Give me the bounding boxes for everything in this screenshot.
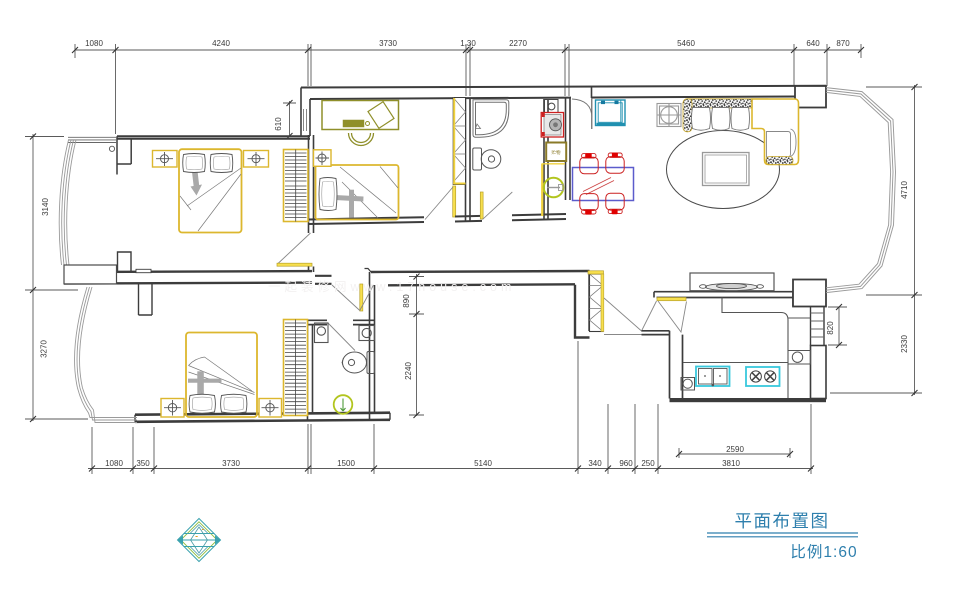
- svg-text:3140: 3140: [41, 198, 50, 216]
- svg-text:870: 870: [836, 39, 850, 48]
- svg-text:2240: 2240: [404, 362, 413, 380]
- svg-text:一起装修网www.17house.com: 一起装修网www.17house.com: [268, 279, 515, 294]
- svg-text:2330: 2330: [900, 335, 909, 353]
- svg-text:4240: 4240: [212, 39, 230, 48]
- svg-text:1500: 1500: [337, 459, 355, 468]
- svg-text:平面布置图: 平面布置图: [735, 511, 830, 531]
- svg-text:1080: 1080: [85, 39, 103, 48]
- svg-text:960: 960: [619, 459, 633, 468]
- svg-text:820: 820: [826, 321, 835, 335]
- svg-text:3810: 3810: [722, 459, 740, 468]
- svg-text:610: 610: [274, 117, 283, 131]
- svg-text:5460: 5460: [677, 39, 695, 48]
- svg-text:250: 250: [641, 459, 655, 468]
- svg-text:3270: 3270: [40, 340, 49, 358]
- svg-text:350: 350: [136, 459, 150, 468]
- svg-text:1.30: 1.30: [460, 39, 476, 48]
- svg-text:1080: 1080: [105, 459, 123, 468]
- svg-text:贮物: 贮物: [552, 149, 561, 156]
- svg-text:5140: 5140: [474, 459, 492, 468]
- svg-text:4710: 4710: [900, 181, 909, 199]
- svg-text:340: 340: [588, 459, 602, 468]
- svg-text:3730: 3730: [222, 459, 240, 468]
- svg-text:3730: 3730: [379, 39, 397, 48]
- svg-text:2270: 2270: [509, 39, 527, 48]
- svg-text:640: 640: [806, 39, 820, 48]
- svg-text:2590: 2590: [726, 445, 744, 454]
- svg-text:比例1:60: 比例1:60: [790, 543, 857, 561]
- svg-text:890: 890: [402, 294, 411, 308]
